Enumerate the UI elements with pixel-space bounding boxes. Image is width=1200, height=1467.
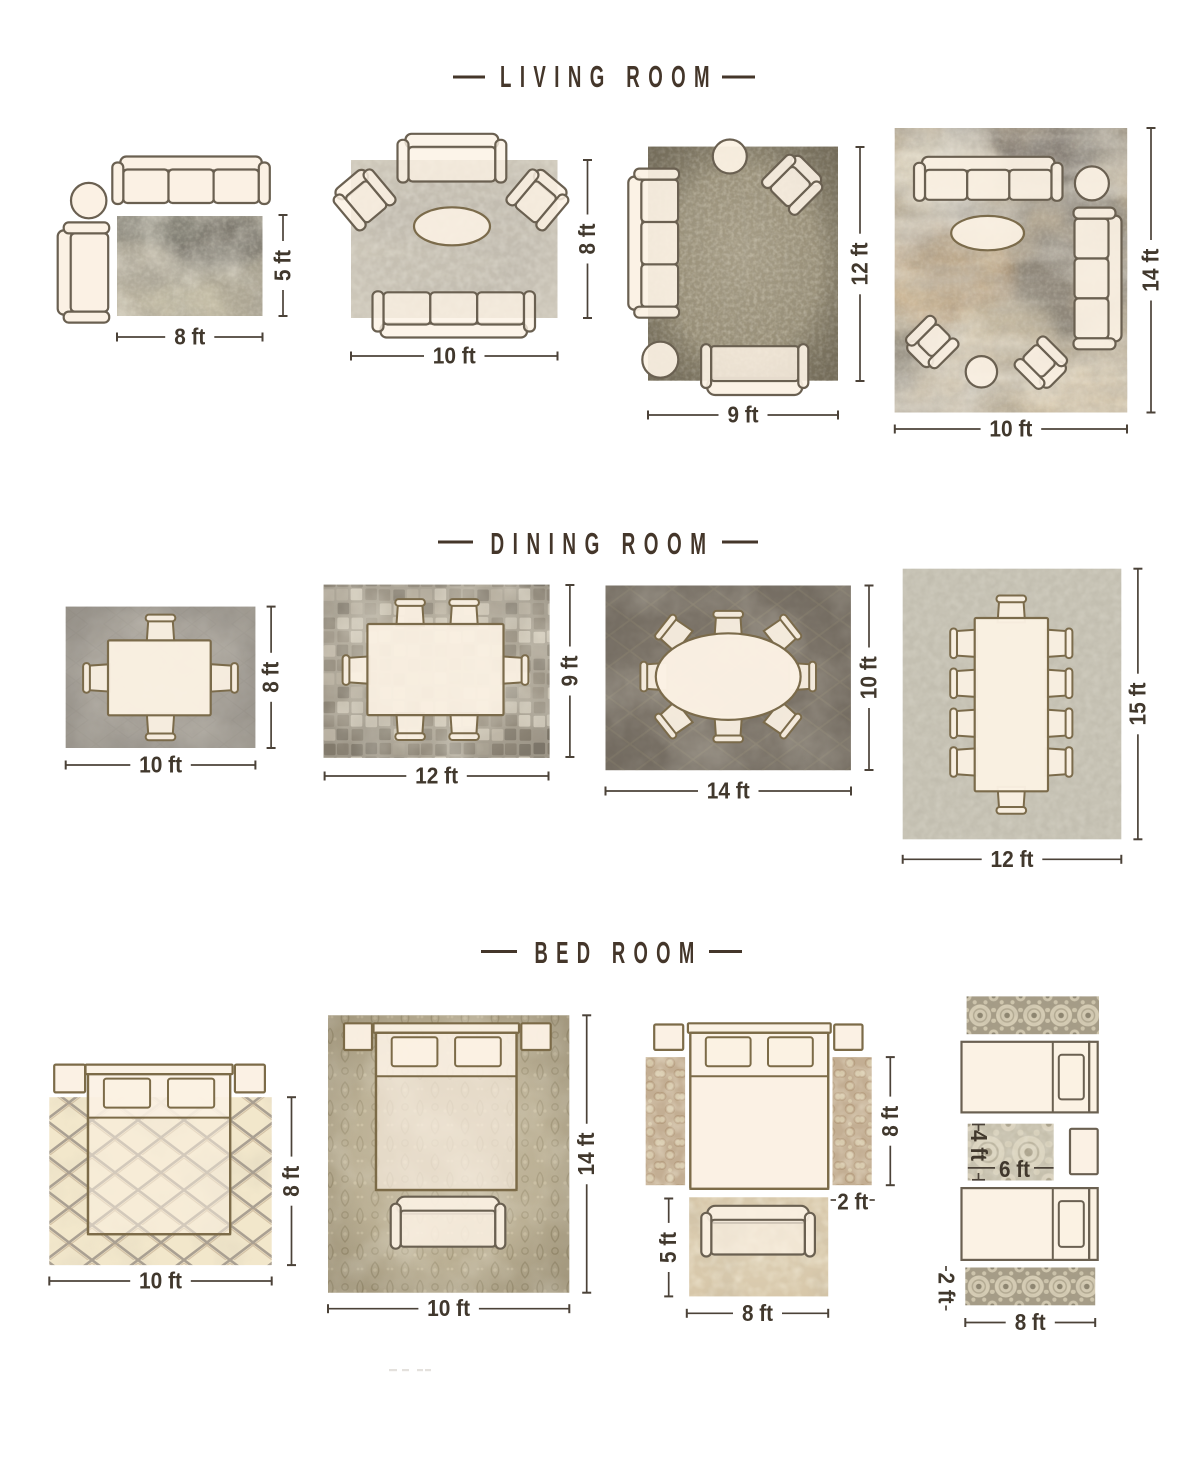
svg-text:10 ft: 10 ft — [856, 656, 882, 699]
svg-text:9 ft: 9 ft — [556, 655, 582, 686]
svg-text:5 ft: 5 ft — [270, 250, 296, 281]
svg-text:9 ft: 9 ft — [728, 402, 759, 428]
svg-text:14 ft: 14 ft — [1138, 248, 1164, 291]
svg-text:6 ft: 6 ft — [999, 1156, 1030, 1182]
svg-text:14 ft: 14 ft — [573, 1132, 599, 1175]
svg-text:8 ft: 8 ft — [742, 1300, 773, 1326]
svg-text:12 ft: 12 ft — [847, 242, 873, 285]
svg-text:2 ft: 2 ft — [837, 1189, 868, 1215]
svg-text:2 ft: 2 ft — [934, 1273, 960, 1304]
svg-text:14 ft: 14 ft — [707, 778, 750, 804]
svg-text:12 ft: 12 ft — [415, 763, 458, 789]
svg-text:10 ft: 10 ft — [989, 416, 1032, 442]
svg-text:8 ft: 8 ft — [278, 1165, 304, 1196]
svg-text:8 ft: 8 ft — [1015, 1309, 1046, 1335]
svg-text:5 ft: 5 ft — [655, 1232, 681, 1263]
svg-text:8 ft: 8 ft — [174, 324, 205, 350]
svg-text:BED ROOM: BED ROOM — [535, 935, 703, 970]
svg-text:LIVING ROOM: LIVING ROOM — [500, 59, 718, 94]
svg-text:10 ft: 10 ft — [139, 752, 182, 778]
svg-text:DINING ROOM: DINING ROOM — [491, 526, 715, 561]
svg-text:10 ft: 10 ft — [427, 1295, 470, 1321]
svg-text:10 ft: 10 ft — [433, 343, 476, 369]
svg-text:15 ft: 15 ft — [1124, 682, 1150, 725]
svg-text:12 ft: 12 ft — [991, 846, 1034, 872]
svg-text:8 ft: 8 ft — [258, 661, 284, 692]
svg-text:8 ft: 8 ft — [574, 223, 600, 254]
svg-text:8 ft: 8 ft — [877, 1105, 903, 1136]
svg-text:4 ft: 4 ft — [966, 1130, 992, 1161]
svg-text:10 ft: 10 ft — [139, 1268, 182, 1294]
